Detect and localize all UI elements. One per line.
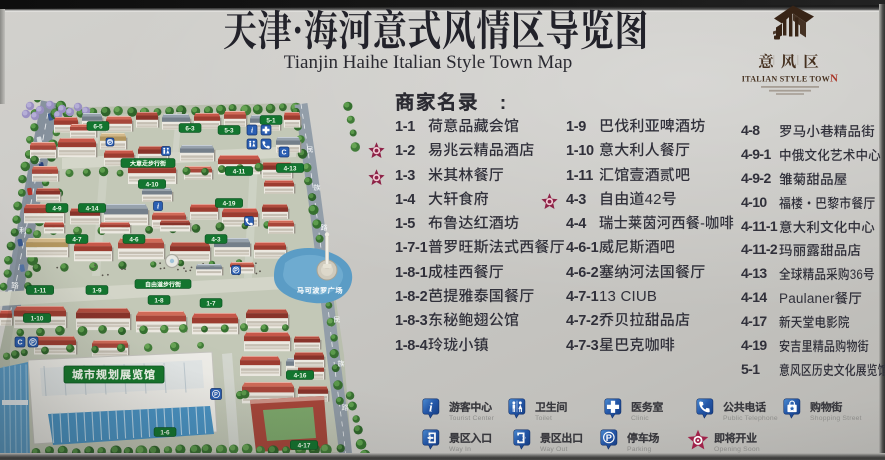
svg-text:意风区: 意风区 [758, 50, 826, 72]
svg-text:P: P [606, 433, 612, 443]
svg-text:ITALIAN STYLE TOWN: ITALIAN STYLE TOWN [742, 73, 839, 85]
svg-text:i: i [429, 399, 433, 414]
